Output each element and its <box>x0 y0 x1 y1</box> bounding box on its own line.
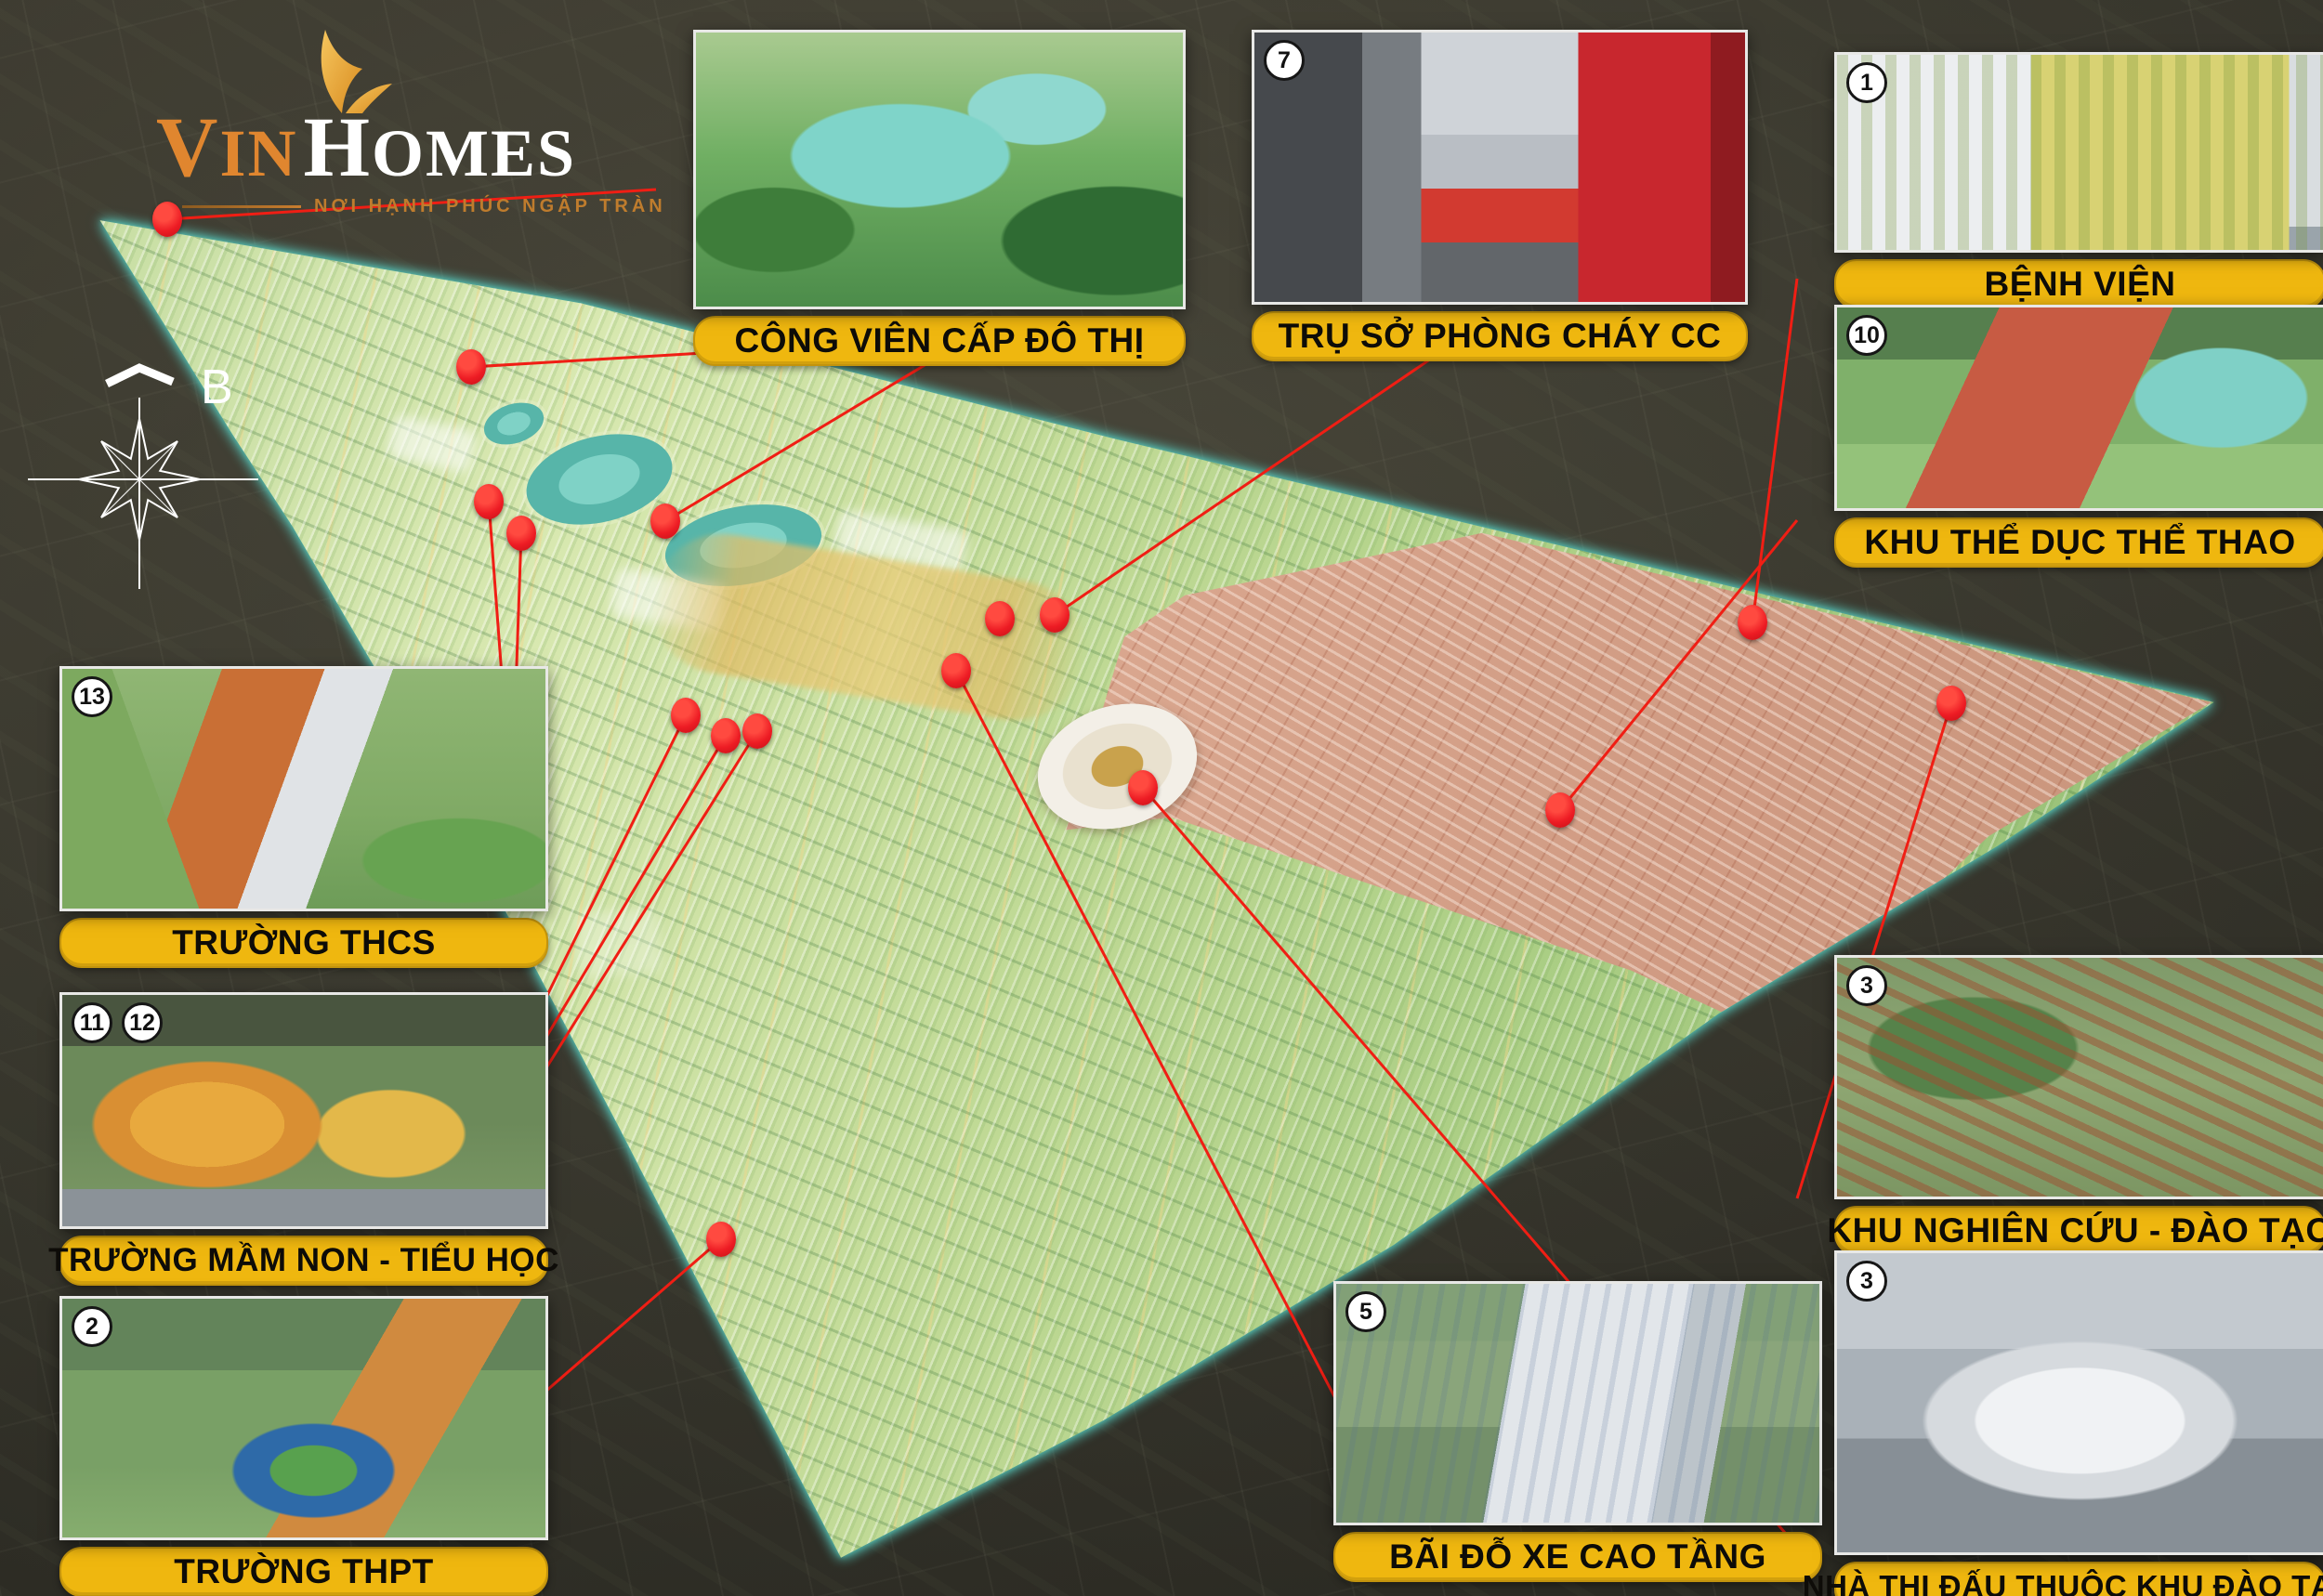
brand-wordmark-homes: HOMES <box>303 116 576 190</box>
card-label-nha-thi-dau: NHÀ THI ĐẤU THUỘC KHU ĐÀO TẠO <box>1834 1562 2323 1596</box>
brand-tagline: NƠI HẠNH PHÚC NGẬP TRÀN <box>314 196 666 217</box>
location-marker <box>671 698 701 733</box>
card-photo-thpt: 2 <box>59 1296 548 1540</box>
connector-line <box>956 671 1394 1511</box>
card-mam-non: 1112 TRƯỜNG MẦM NON - TIỂU HỌC <box>59 992 548 1286</box>
location-marker <box>706 1222 736 1257</box>
card-bai-do-xe: 5 BÃI ĐỖ XE CAO TẦNG <box>1333 1281 1822 1582</box>
location-marker <box>1936 686 1966 721</box>
badge-group: 5 <box>1345 1291 1386 1332</box>
badge-group: 2 <box>72 1306 112 1347</box>
badge-number: 5 <box>1345 1291 1386 1332</box>
card-photo-nha-thi-dau: 3 <box>1834 1250 2323 1555</box>
location-marker <box>1738 605 1767 640</box>
card-thpt: 2 TRƯỜNG THPT <box>59 1296 548 1596</box>
card-label-the-thao: KHU THỂ DỤC THỂ THAO <box>1834 517 2323 568</box>
badge-number: 11 <box>72 1002 112 1043</box>
card-photo-benh-vien: 1 <box>1834 52 2323 253</box>
badge-group: 1 <box>1846 62 1887 103</box>
masterplan-poster: VVININHOMES NƠI HẠNH PHÚC NGẬP TRÀN B <box>0 0 2323 1596</box>
card-label-benh-vien: BỆNH VIỆN <box>1834 259 2323 309</box>
tagline-rule <box>182 205 301 208</box>
badge-number: 13 <box>72 676 112 717</box>
card-label-nghien-cuu: KHU NGHIÊN CỨU - ĐÀO TẠO <box>1834 1206 2323 1256</box>
card-pccc: 7 TRỤ SỞ PHÒNG CHÁY CC <box>1252 30 1748 361</box>
connector-line <box>1055 337 1463 615</box>
badge-number: 7 <box>1264 40 1305 81</box>
location-marker <box>711 718 741 753</box>
card-the-thao: 10 KHU THỂ DỤC THỂ THAO <box>1834 305 2323 568</box>
location-marker <box>1128 770 1158 805</box>
card-photo-mam-non: 1112 <box>59 992 548 1229</box>
location-marker <box>152 202 182 237</box>
card-benh-vien: 1 BỆNH VIỆN <box>1834 52 2323 309</box>
location-marker <box>474 484 504 519</box>
card-label-bai-do-xe: BÃI ĐỖ XE CAO TẦNG <box>1333 1532 1822 1582</box>
card-photo-the-thao: 10 <box>1834 305 2323 511</box>
brand-wordmark-vin: VVININ <box>156 116 297 190</box>
location-marker <box>941 653 971 688</box>
card-photo-cong-vien <box>693 30 1186 309</box>
card-label-mam-non: TRƯỜNG MẦM NON - TIỂU HỌC <box>59 1236 548 1286</box>
badge-number: 3 <box>1846 1261 1887 1302</box>
card-label-cong-vien: CÔNG VIÊN CẤP ĐÔ THỊ <box>693 316 1186 366</box>
card-photo-nghien-cuu: 3 <box>1834 955 2323 1199</box>
card-photo-thcs: 13 <box>59 666 548 911</box>
location-marker <box>506 516 536 551</box>
location-marker <box>456 349 486 385</box>
badge-group: 1112 <box>72 1002 163 1043</box>
card-photo-bai-do-xe: 5 <box>1333 1281 1822 1525</box>
compass-north-label: B <box>201 360 233 414</box>
badge-group: 3 <box>1846 1261 1887 1302</box>
brand-wordmark: VVININHOMES <box>156 104 576 190</box>
location-marker <box>742 713 772 749</box>
connector-line <box>1560 520 1797 810</box>
card-nha-thi-dau: 3 NHÀ THI ĐẤU THUỘC KHU ĐÀO TẠO <box>1834 1250 2323 1596</box>
location-marker <box>1040 597 1070 633</box>
badge-number: 2 <box>72 1306 112 1347</box>
badge-number: 1 <box>1846 62 1887 103</box>
card-photo-pccc: 7 <box>1252 30 1748 305</box>
badge-group: 3 <box>1846 965 1887 1006</box>
location-marker <box>650 504 680 539</box>
connector-line <box>1752 279 1797 622</box>
card-label-pccc: TRỤ SỞ PHÒNG CHÁY CC <box>1252 311 1748 361</box>
location-marker <box>1545 792 1575 828</box>
badge-group: 13 <box>72 676 112 717</box>
connector-line <box>665 346 957 521</box>
badge-number: 3 <box>1846 965 1887 1006</box>
compass-rose-icon: B <box>26 331 269 606</box>
brand-tagline-row: NƠI HẠNH PHÚC NGẬP TRÀN <box>182 196 666 217</box>
card-label-thpt: TRƯỜNG THPT <box>59 1547 548 1596</box>
card-thcs: 13 TRƯỜNG THCS <box>59 666 548 968</box>
location-marker <box>985 601 1015 636</box>
badge-number: 12 <box>122 1002 163 1043</box>
card-cong-vien: CÔNG VIÊN CẤP ĐÔ THỊ <box>693 30 1186 366</box>
card-nghien-cuu: 3 KHU NGHIÊN CỨU - ĐÀO TẠO <box>1834 955 2323 1256</box>
card-label-thcs: TRƯỜNG THCS <box>59 918 548 968</box>
badge-group: 10 <box>1846 315 1887 356</box>
badge-group: 7 <box>1264 40 1305 81</box>
badge-number: 10 <box>1846 315 1887 356</box>
